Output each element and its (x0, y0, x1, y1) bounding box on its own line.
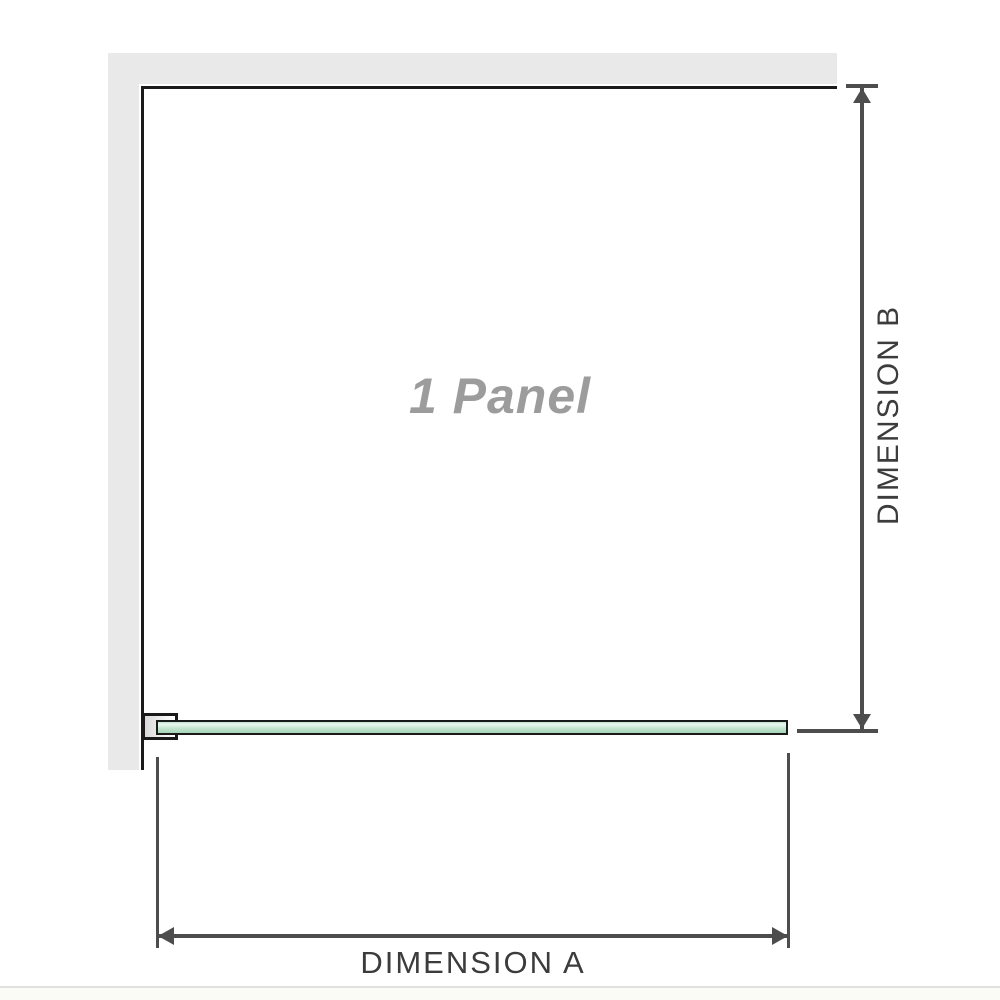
wall-top (108, 53, 837, 84)
wall-inner-edge-left (141, 86, 144, 770)
dimension-a-arrow-right-icon (772, 927, 788, 945)
shower-panel-diagram: 1 Panel DIMENSION B DIMENSION A (0, 0, 1000, 1000)
image-bottom-edge-strip (0, 988, 1000, 1000)
wall-left (108, 53, 139, 770)
wall-inner-edge-top (141, 86, 837, 89)
dimension-a-extension-right (787, 753, 790, 948)
panel-count-label: 1 Panel (250, 371, 750, 421)
dimension-b-arrow-down-icon (853, 714, 871, 729)
glass-panel (156, 720, 788, 735)
dimension-b-arrow-up-icon (853, 88, 871, 103)
dimension-b-label: DIMENSION B (872, 305, 906, 525)
dimension-a-arrow-left-icon (158, 927, 174, 945)
dimension-b-line (860, 88, 864, 729)
dimension-a-extension-left (156, 757, 159, 948)
dimension-a-label: DIMENSION A (158, 947, 788, 978)
dimension-a-line (158, 934, 788, 938)
dimension-b-tick-bottom (797, 729, 878, 733)
